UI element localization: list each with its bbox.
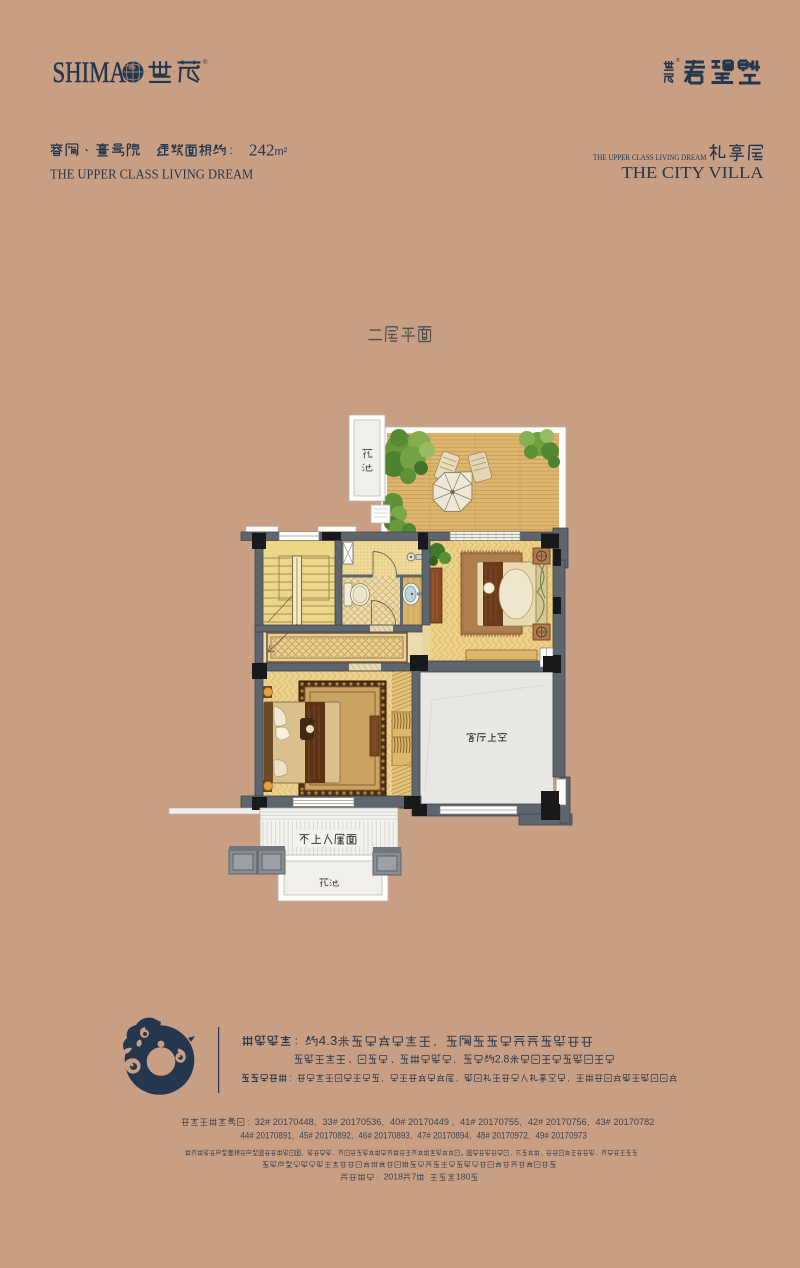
svg-text:33# 20170536: 33# 20170536 xyxy=(322,1116,381,1127)
svg-text:4.3: 4.3 xyxy=(319,1033,338,1048)
svg-text:®: ® xyxy=(203,59,208,66)
svg-text:7: 7 xyxy=(411,1172,416,1182)
svg-text:®: ® xyxy=(676,57,680,64)
svg-text:44# 20170891: 44# 20170891 xyxy=(240,1130,291,1141)
svg-text:43# 20170782: 43# 20170782 xyxy=(595,1116,654,1127)
svg-text:m²: m² xyxy=(275,146,288,158)
svg-text:47# 20170894: 47# 20170894 xyxy=(417,1130,468,1141)
svg-text:42# 20170756: 42# 20170756 xyxy=(528,1116,587,1127)
svg-text:242: 242 xyxy=(249,141,275,160)
svg-text:2.8: 2.8 xyxy=(495,1053,510,1065)
svg-text:46# 20170893: 46# 20170893 xyxy=(358,1130,409,1141)
svg-text:2018: 2018 xyxy=(384,1172,404,1182)
svg-text:SHIMA: SHIMA xyxy=(53,55,127,89)
svg-text:45# 20170892: 45# 20170892 xyxy=(299,1130,350,1141)
svg-text:THE CITY VILLA: THE CITY VILLA xyxy=(622,163,764,182)
svg-text:180: 180 xyxy=(456,1172,471,1182)
svg-text:32# 20170448: 32# 20170448 xyxy=(255,1116,314,1127)
svg-text:THE UPPER CLASS LIVING DREAM: THE UPPER CLASS LIVING DREAM xyxy=(50,166,253,182)
svg-text:THE UPPER CLASS LIVING DREAM: THE UPPER CLASS LIVING DREAM xyxy=(593,152,706,162)
svg-text:48# 20170972: 48# 20170972 xyxy=(476,1130,527,1141)
svg-text:41# 20170755: 41# 20170755 xyxy=(460,1116,519,1127)
svg-text:40# 20170449: 40# 20170449 xyxy=(390,1116,449,1127)
svg-text:49# 20170973: 49# 20170973 xyxy=(535,1130,586,1141)
